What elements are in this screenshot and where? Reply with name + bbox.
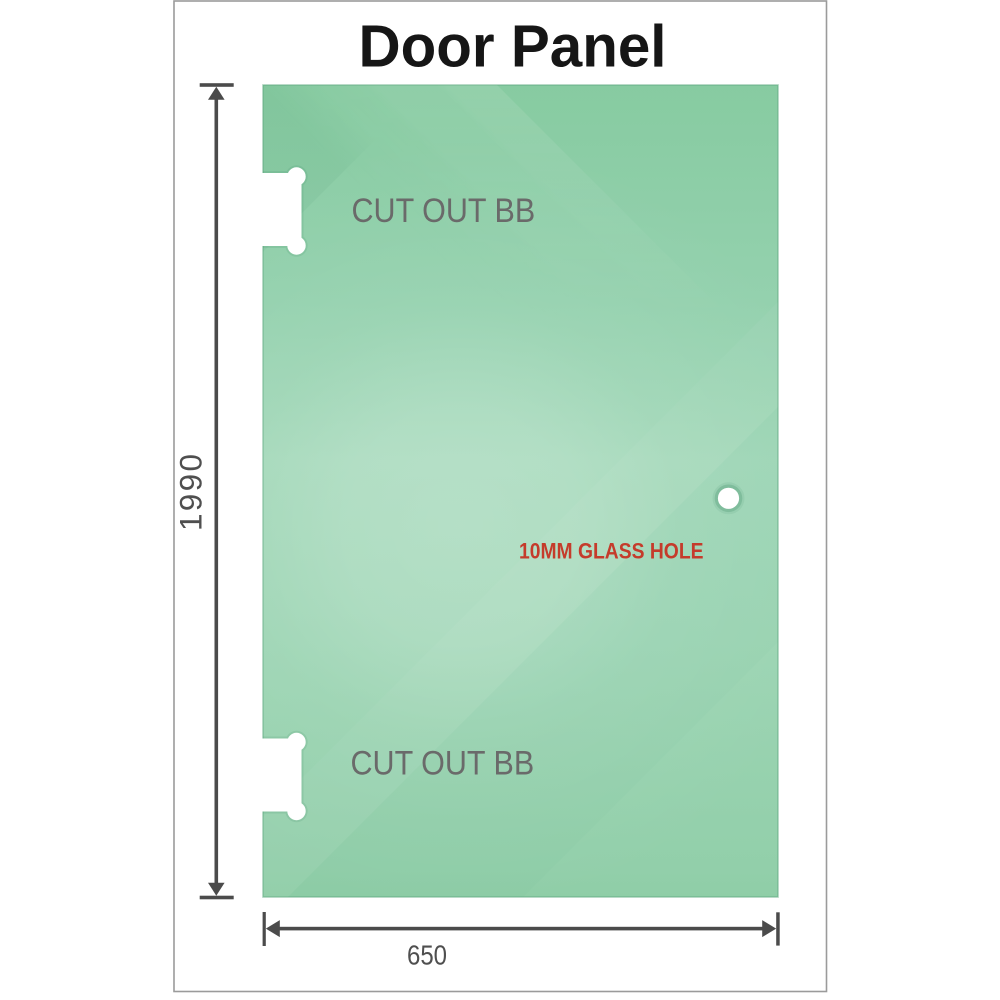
svg-text:CUT OUT BB: CUT OUT BB xyxy=(351,745,535,783)
svg-text:Door Panel: Door Panel xyxy=(359,13,667,79)
svg-text:10MM GLASS HOLE: 10MM GLASS HOLE xyxy=(519,539,704,564)
svg-text:CUT OUT BB: CUT OUT BB xyxy=(352,192,536,230)
svg-text:650: 650 xyxy=(407,940,447,971)
